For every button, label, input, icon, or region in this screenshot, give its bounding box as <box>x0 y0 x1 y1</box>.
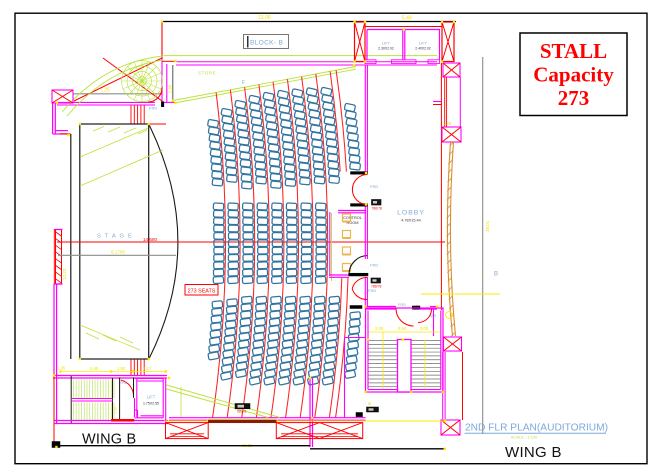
svg-text:14.680: 14.680 <box>143 237 157 242</box>
svg-text:273 SEATS: 273 SEATS <box>188 289 216 295</box>
svg-text:LOBBY: LOBBY <box>397 210 425 217</box>
svg-text:STALL: STALL <box>540 39 607 63</box>
svg-text:WING B: WING B <box>505 444 562 461</box>
svg-text:FRD: FRD <box>370 184 378 189</box>
svg-text:1.75X2.55: 1.75X2.55 <box>143 402 159 406</box>
svg-text:786/78: 786/78 <box>372 207 382 211</box>
svg-text:273: 273 <box>558 86 590 110</box>
svg-text:WR: WR <box>429 314 436 319</box>
svg-text:STORE: STORE <box>198 71 216 76</box>
svg-text:5.48: 5.48 <box>402 16 412 22</box>
svg-text:2.00: 2.00 <box>420 326 429 331</box>
svg-text:2.40X2.02: 2.40X2.02 <box>415 47 431 51</box>
svg-text:BLOCK- B: BLOCK- B <box>250 40 283 47</box>
svg-text:7.25: 7.25 <box>100 88 110 94</box>
svg-text:FRD: FRD <box>370 263 378 268</box>
svg-text:FRD: FRD <box>368 288 376 293</box>
svg-text:LIFT: LIFT <box>382 41 391 46</box>
svg-text:4.78X15.44: 4.78X15.44 <box>401 219 420 223</box>
svg-text:LIFT: LIFT <box>147 395 156 400</box>
svg-text:FRD: FRD <box>120 381 128 385</box>
svg-text:B: B <box>367 402 372 405</box>
svg-text:2.00: 2.00 <box>375 326 384 331</box>
svg-text:Capacity: Capacity <box>533 63 614 87</box>
svg-text:2ND FLR PLAN(AUDITORIUM): 2ND FLR PLAN(AUDITORIUM) <box>465 423 608 434</box>
svg-text:SCALE - 1:100: SCALE - 1:100 <box>511 435 538 440</box>
svg-text:2.80: 2.80 <box>168 84 173 93</box>
svg-text:2.45: 2.45 <box>90 366 99 371</box>
svg-text:28.01: 28.01 <box>485 220 490 232</box>
svg-text:0.84: 0.84 <box>398 326 407 331</box>
svg-text:1.50: 1.50 <box>117 366 126 371</box>
svg-text:F: F <box>242 80 245 86</box>
svg-text:FRD: FRD <box>149 106 157 111</box>
svg-text:1.20: 1.20 <box>114 407 118 414</box>
svg-text:FRD: FRD <box>398 303 406 307</box>
svg-text:2.17: 2.17 <box>143 366 152 371</box>
svg-text:B: B <box>494 272 498 278</box>
svg-text:2.30X2.02: 2.30X2.02 <box>378 47 394 51</box>
svg-text:1.35: 1.35 <box>57 366 66 371</box>
svg-text:S T A G E: S T A G E <box>97 234 133 240</box>
svg-text:13.06: 13.06 <box>258 15 271 21</box>
svg-text:786/78: 786/78 <box>237 410 247 414</box>
svg-text:6.1780: 6.1780 <box>111 250 125 255</box>
svg-text:LIFT: LIFT <box>419 41 428 46</box>
svg-text:12.23: 12.23 <box>62 268 67 280</box>
svg-text:1.29: 1.29 <box>443 121 452 126</box>
svg-text:WING B: WING B <box>82 432 136 448</box>
